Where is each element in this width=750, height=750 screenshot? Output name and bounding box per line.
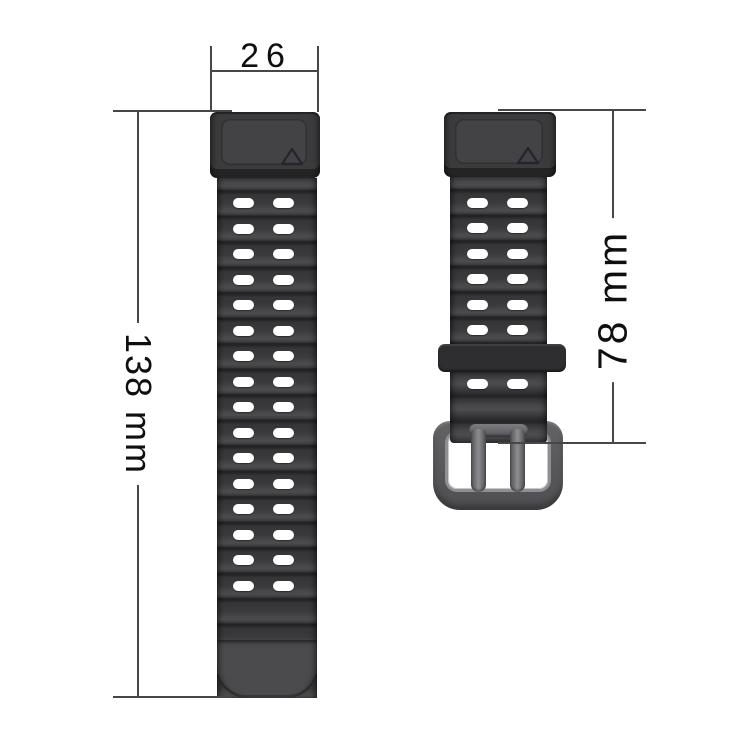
keeper-loop	[438, 344, 566, 372]
strap-hole	[233, 351, 254, 361]
strap-hole	[233, 198, 254, 208]
dim-short-tick-bottom	[498, 442, 646, 444]
strap-hole	[467, 325, 488, 335]
dim-long-tick-top	[113, 110, 232, 112]
watch-band-dimension-diagram: 26 138 mm 78 mm	[0, 0, 750, 750]
strap-hole	[233, 453, 254, 463]
strap-hole	[467, 300, 488, 310]
strap-hole	[273, 555, 294, 565]
long-strap-body	[217, 178, 317, 698]
strap-hole	[467, 198, 488, 208]
strap-hole	[273, 479, 294, 489]
dim-width-tick-right	[317, 46, 319, 112]
strap-hole	[273, 453, 294, 463]
dim-short-tick-top	[498, 109, 646, 111]
triangle-icon	[516, 146, 540, 165]
strap-hole	[467, 223, 488, 233]
strap-hole	[233, 224, 254, 234]
strap-hole	[233, 555, 254, 565]
strap-hole	[233, 402, 254, 412]
strap-hole	[233, 581, 254, 591]
strap-hole	[273, 377, 294, 387]
strap-hole	[507, 274, 528, 284]
strap-hole	[233, 275, 254, 285]
strap-hole	[233, 300, 254, 310]
strap-hole	[273, 224, 294, 234]
strap-hole	[233, 530, 254, 540]
strap-hole	[507, 300, 528, 310]
strap-hole	[507, 379, 528, 389]
dim-long-label: 138 mm	[116, 323, 160, 485]
strap-hole	[507, 249, 528, 259]
dim-width-label: 26	[240, 39, 292, 73]
strap-hole	[233, 479, 254, 489]
strap-hole	[233, 428, 254, 438]
strap-hole	[273, 402, 294, 412]
dim-short-label: 78 mm	[589, 218, 638, 382]
strap-hole	[507, 223, 528, 233]
strap-hole	[273, 326, 294, 336]
strap-hole	[273, 275, 294, 285]
dim-width-tick-left	[210, 46, 212, 112]
short-strap-upper-holes	[450, 177, 547, 371]
strap-hole	[233, 249, 254, 259]
strap-hole	[507, 325, 528, 335]
strap-hole	[273, 351, 294, 361]
strap-hole	[467, 249, 488, 259]
buckle-prong-left	[471, 429, 486, 492]
strap-hole	[273, 198, 294, 208]
buckle-prong-right	[510, 429, 525, 492]
strap-hole	[233, 326, 254, 336]
dim-long-tick-bottom	[113, 696, 232, 698]
strap-hole	[273, 300, 294, 310]
strap-hole	[273, 530, 294, 540]
triangle-icon	[280, 147, 304, 166]
strap-hole	[467, 379, 488, 389]
strap-hole	[507, 198, 528, 208]
strap-hole	[273, 581, 294, 591]
strap-hole	[233, 377, 254, 387]
strap-hole	[233, 504, 254, 514]
long-strap-connector	[210, 112, 320, 178]
long-strap-holes	[217, 178, 317, 698]
strap-hole	[273, 504, 294, 514]
strap-hole	[467, 274, 488, 284]
short-strap-upper-body	[450, 177, 547, 371]
strap-hole	[273, 428, 294, 438]
short-strap-connector	[444, 112, 556, 177]
strap-hole	[273, 249, 294, 259]
